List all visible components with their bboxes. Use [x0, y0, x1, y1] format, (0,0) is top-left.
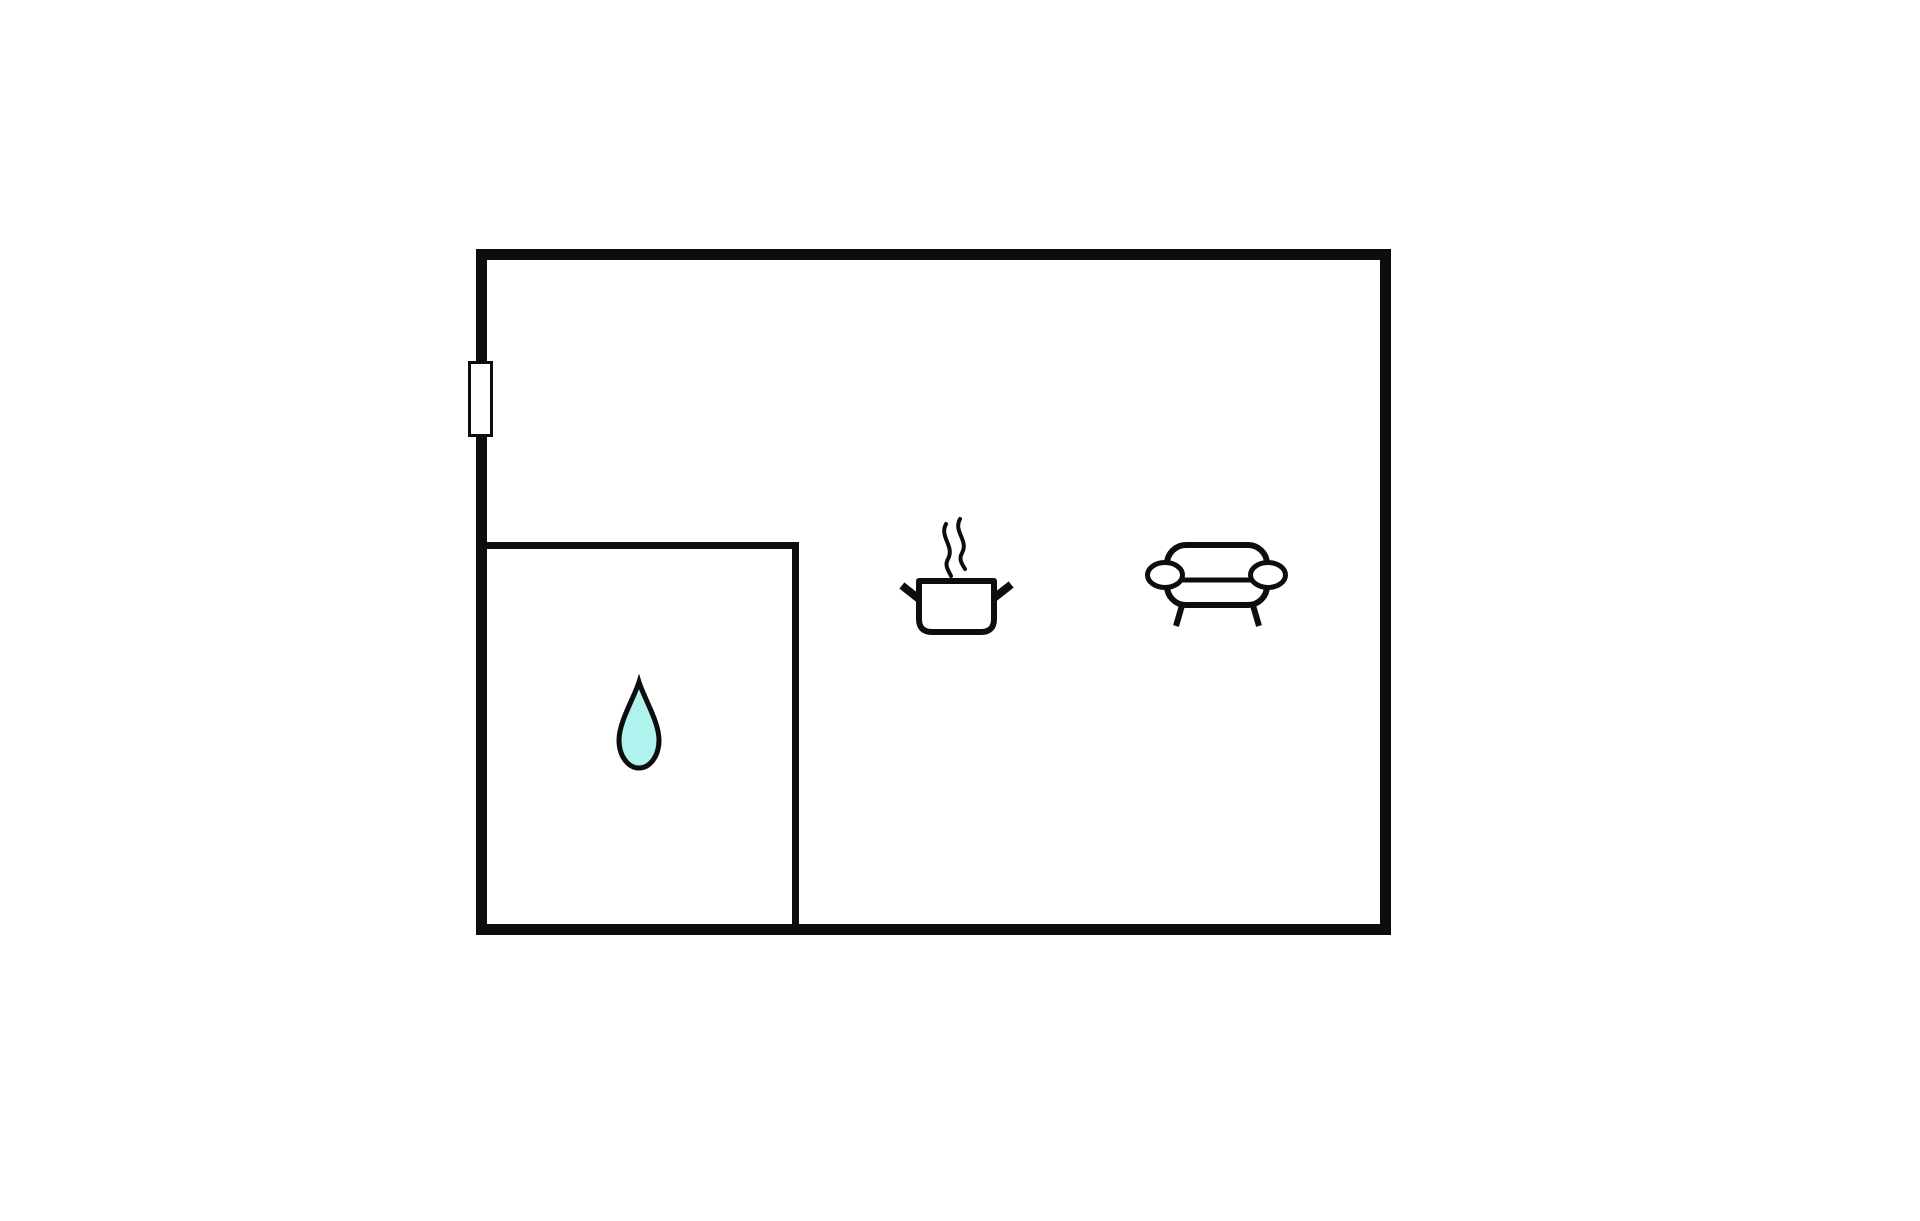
steam-lines: [944, 519, 965, 576]
sofa-icon: [1142, 540, 1292, 632]
water-drop-icon: [612, 678, 666, 772]
floor-plan-canvas: [0, 0, 1920, 1221]
water-drop-shape: [619, 682, 659, 768]
sofa-armrest-left: [1148, 563, 1183, 588]
pot-body: [919, 581, 994, 632]
sofa-armrest-right: [1251, 563, 1286, 588]
pot-steam-icon: [898, 512, 1018, 638]
window-marker: [468, 361, 493, 437]
